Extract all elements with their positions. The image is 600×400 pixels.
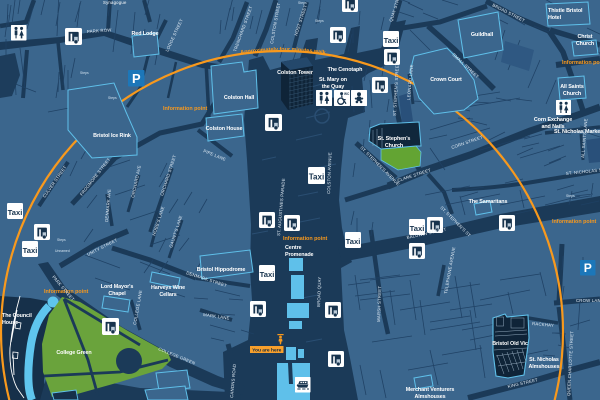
svg-text:Steps: Steps [57,238,66,242]
svg-text:Lord Mayor's: Lord Mayor's [101,284,134,290]
svg-text:Merchant Venturers: Merchant Venturers [406,387,455,393]
svg-text:Chapel: Chapel [108,291,126,297]
svg-text:Steps: Steps [566,194,575,198]
svg-text:Cellars: Cellars [159,292,176,298]
svg-text:Bristol Hippodrome: Bristol Hippodrome [197,267,246,273]
svg-text:The Cenotaph: The Cenotaph [328,67,363,73]
svg-text:Corn Exchange: Corn Exchange [534,117,572,123]
svg-text:Church: Church [385,143,403,149]
svg-text:The Samaritans: The Samaritans [469,199,508,205]
svg-text:St. Nicholas: St. Nicholas [529,357,559,363]
svg-text:Steps: Steps [80,71,89,75]
svg-text:Colston Hall: Colston Hall [224,95,255,101]
svg-text:Information point: Information point [552,219,597,225]
svg-text:Steps: Steps [108,96,117,100]
svg-text:Colston Tower: Colston Tower [277,70,314,76]
svg-text:Colston House: Colston House [206,126,243,132]
svg-text:St. Stephen's: St. Stephen's [378,136,411,142]
svg-text:Almshouses: Almshouses [414,394,445,400]
svg-text:Christ: Christ [578,34,593,40]
svg-text:Information point: Information point [163,106,208,112]
svg-text:Information point: Information point [283,236,328,242]
svg-text:Information point: Information point [562,60,600,66]
svg-text:CROW LANE: CROW LANE [576,298,600,303]
svg-text:Church: Church [563,91,581,97]
svg-text:Crown Court: Crown Court [430,77,462,83]
svg-text:Almshouses: Almshouses [528,364,559,370]
svg-text:Red Lodge: Red Lodge [132,31,159,37]
svg-text:Bristol Ice Rink: Bristol Ice Rink [93,133,131,139]
svg-text:Thistle Bristol: Thistle Bristol [548,8,583,14]
svg-text:The Council: The Council [2,313,32,319]
svg-text:Hotel: Hotel [548,15,562,21]
svg-text:Bristol Old Vic: Bristol Old Vic [492,341,528,347]
svg-text:the Quay: the Quay [322,84,344,90]
svg-text:House: House [2,320,18,326]
svg-text:St. Nicholas Market: St. Nicholas Market [554,129,600,135]
svg-text:Church: Church [576,41,594,47]
svg-text:BROAD QUAY: BROAD QUAY [316,277,322,307]
svg-text:College Green: College Green [56,350,91,356]
svg-text:You are here: You are here [252,348,282,354]
svg-text:Guildhall: Guildhall [471,32,494,38]
svg-text:Promenade: Promenade [285,252,314,258]
svg-text:Centre: Centre [285,245,302,251]
svg-text:Synagogue: Synagogue [103,0,127,5]
svg-text:Harveys Wine: Harveys Wine [151,285,185,291]
svg-text:Steps: Steps [298,1,307,5]
svg-text:Unnamed: Unnamed [55,249,70,253]
svg-text:St. Mary on: St. Mary on [319,77,347,83]
svg-text:All Saints: All Saints [560,84,584,90]
svg-text:Steps: Steps [315,19,324,23]
